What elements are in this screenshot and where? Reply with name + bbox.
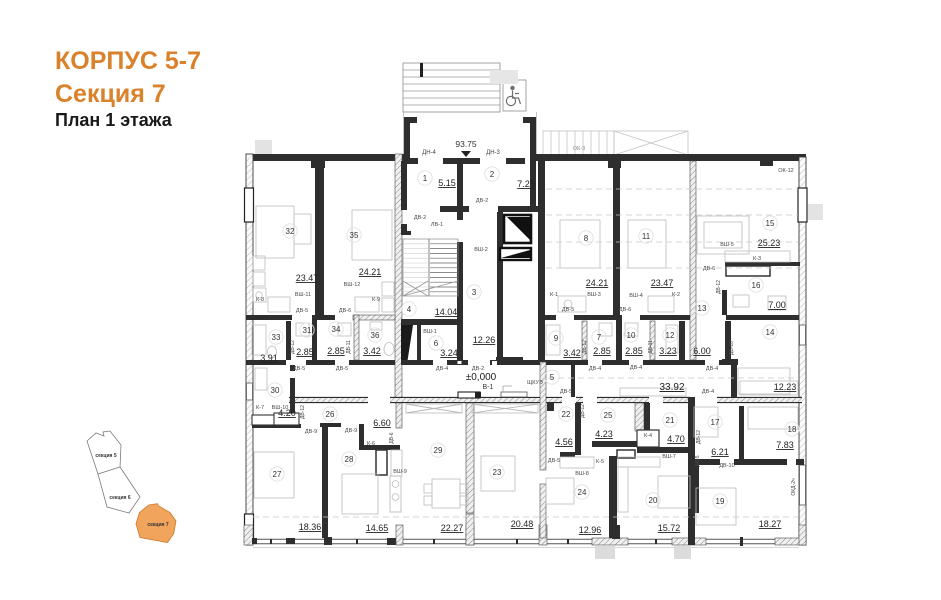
svg-text:ДВ-5: ДВ-5 — [296, 308, 308, 314]
svg-text:ДВ-12: ДВ-12 — [300, 405, 306, 419]
svg-text:6.00: 6.00 — [693, 346, 711, 356]
svg-text:3.23: 3.23 — [659, 346, 677, 356]
svg-text:13: 13 — [698, 304, 707, 313]
svg-text:24.21: 24.21 — [586, 278, 609, 288]
svg-text:6: 6 — [434, 339, 439, 348]
svg-text:ДН-3: ДН-3 — [486, 150, 500, 156]
svg-text:±0,000: ±0,000 — [466, 372, 497, 383]
svg-text:ВШ-7: ВШ-7 — [662, 454, 676, 460]
svg-text:23: 23 — [493, 468, 502, 477]
svg-text:ВШ-8: ВШ-8 — [575, 471, 589, 477]
svg-text:20.48: 20.48 — [511, 519, 534, 529]
svg-text:ДВ-11: ДВ-11 — [346, 340, 352, 354]
svg-text:ДВ-12: ДВ-12 — [580, 404, 586, 418]
svg-text:19: 19 — [716, 497, 725, 506]
svg-text:План 1 этажа: План 1 этажа — [55, 110, 173, 130]
svg-text:К-7: К-7 — [256, 405, 264, 411]
svg-text:ЛВ-1: ЛВ-1 — [431, 222, 443, 228]
svg-text:ДВ-5: ДВ-5 — [560, 389, 572, 395]
svg-text:12.26: 12.26 — [473, 335, 496, 345]
svg-text:2: 2 — [490, 170, 495, 179]
svg-text:ДВ-4: ДВ-4 — [630, 365, 642, 371]
svg-text:4: 4 — [407, 305, 412, 314]
svg-text:31: 31 — [303, 326, 312, 335]
svg-text:ДВ-10: ДВ-10 — [719, 463, 734, 469]
svg-text:1: 1 — [423, 174, 428, 183]
svg-text:5.15: 5.15 — [438, 178, 456, 188]
svg-text:ДВ-5: ДВ-5 — [562, 307, 574, 313]
svg-text:К-8: К-8 — [256, 297, 264, 303]
svg-text:К-6: К-6 — [367, 441, 375, 447]
svg-text:ВШ-12: ВШ-12 — [344, 282, 361, 288]
svg-text:6.21: 6.21 — [711, 447, 729, 457]
svg-text:3.42: 3.42 — [563, 348, 581, 358]
svg-text:ДВ-9: ДВ-9 — [305, 429, 317, 435]
svg-text:34: 34 — [332, 325, 341, 334]
svg-text:8: 8 — [584, 234, 589, 243]
svg-text:22.27: 22.27 — [441, 523, 464, 533]
svg-text:24.21: 24.21 — [359, 267, 382, 277]
svg-text:Секция 7: Секция 7 — [55, 80, 166, 108]
svg-text:5: 5 — [550, 373, 555, 382]
svg-text:ДВ-2: ДВ-2 — [472, 366, 484, 372]
svg-text:7: 7 — [597, 333, 602, 342]
svg-text:секция 5: секция 5 — [95, 453, 117, 459]
svg-text:2.85: 2.85 — [625, 346, 643, 356]
svg-text:ВШ-1: ВШ-1 — [423, 329, 437, 335]
svg-text:ДВ-6: ДВ-6 — [389, 432, 395, 443]
svg-text:3.42: 3.42 — [363, 346, 381, 356]
svg-text:23.47: 23.47 — [651, 278, 674, 288]
svg-text:К-9: К-9 — [372, 297, 380, 303]
svg-text:28: 28 — [345, 455, 354, 464]
svg-text:32: 32 — [286, 227, 295, 236]
svg-text:9: 9 — [554, 334, 559, 343]
svg-text:КОРПУС 5-7: КОРПУС 5-7 — [55, 47, 201, 75]
svg-text:ВШ-3: ВШ-3 — [587, 292, 601, 298]
svg-text:ДВ-11: ДВ-11 — [648, 340, 654, 354]
svg-text:ДВ-12: ДВ-12 — [696, 430, 702, 444]
svg-text:93.75: 93.75 — [455, 139, 477, 149]
svg-text:14.04: 14.04 — [435, 307, 458, 317]
svg-text:22: 22 — [562, 410, 571, 419]
svg-text:ДВ-12: ДВ-12 — [716, 280, 722, 294]
svg-text:17: 17 — [711, 418, 720, 427]
svg-text:ДВ-12: ДВ-12 — [582, 340, 588, 354]
svg-text:27: 27 — [273, 470, 282, 479]
svg-text:7.25: 7.25 — [517, 179, 535, 189]
svg-text:12: 12 — [666, 331, 675, 340]
svg-text:3.24: 3.24 — [440, 348, 458, 358]
svg-text:20: 20 — [649, 496, 658, 505]
svg-text:7.83: 7.83 — [776, 440, 794, 450]
svg-text:ОК-12: ОК-12 — [778, 168, 793, 174]
svg-text:ДВ-12: ДВ-12 — [290, 340, 296, 354]
svg-text:ДВ-5: ДВ-5 — [695, 455, 701, 466]
svg-text:26: 26 — [326, 410, 335, 419]
svg-text:В-1: В-1 — [483, 384, 494, 391]
svg-text:18.36: 18.36 — [299, 522, 322, 532]
svg-text:ДВ-2: ДВ-2 — [414, 215, 426, 221]
svg-text:ДВ-4: ДВ-4 — [589, 366, 601, 372]
svg-text:ДН-4: ДН-4 — [422, 150, 436, 156]
svg-text:ДВ-5: ДВ-5 — [336, 366, 348, 372]
svg-text:К-3: К-3 — [753, 256, 761, 262]
svg-text:секция 7: секция 7 — [147, 522, 169, 528]
svg-text:24: 24 — [578, 488, 587, 497]
svg-text:ДВ-4: ДВ-4 — [706, 366, 718, 372]
svg-text:ОКД-2ч: ОКД-2ч — [791, 478, 797, 496]
svg-text:2.85: 2.85 — [327, 346, 345, 356]
svg-text:14: 14 — [766, 328, 775, 337]
svg-text:16: 16 — [752, 281, 761, 290]
svg-text:ВШ-9: ВШ-9 — [393, 469, 407, 475]
svg-text:ДВ-10: ДВ-10 — [729, 341, 735, 355]
svg-text:ДВ-5: ДВ-5 — [293, 366, 305, 372]
svg-text:ВШ-5: ВШ-5 — [720, 242, 734, 248]
svg-text:К-4: К-4 — [644, 433, 652, 439]
svg-text:ДВ-4: ДВ-4 — [702, 389, 714, 395]
svg-text:ВШ-4: ВШ-4 — [629, 293, 643, 299]
svg-text:11: 11 — [642, 232, 651, 241]
svg-text:ЩКУЭ: ЩКУЭ — [527, 380, 543, 386]
svg-text:4.70: 4.70 — [667, 434, 685, 444]
svg-text:36: 36 — [371, 331, 380, 340]
svg-text:ВШ-11: ВШ-11 — [295, 292, 311, 298]
svg-text:ДВ-9: ДВ-9 — [345, 428, 357, 434]
svg-text:секция 6: секция 6 — [109, 495, 131, 501]
svg-text:К-2: К-2 — [672, 292, 680, 298]
svg-text:33.92: 33.92 — [659, 382, 684, 393]
svg-text:К-1: К-1 — [550, 292, 558, 298]
svg-text:18.27: 18.27 — [759, 519, 782, 529]
svg-text:4.23: 4.23 — [595, 429, 613, 439]
svg-text:30: 30 — [271, 386, 280, 395]
svg-text:14.65: 14.65 — [366, 523, 389, 533]
svg-text:25: 25 — [604, 411, 613, 420]
svg-text:12.96: 12.96 — [579, 525, 602, 535]
svg-text:2.85: 2.85 — [593, 346, 611, 356]
svg-text:6.60: 6.60 — [373, 418, 391, 428]
svg-text:21: 21 — [666, 416, 675, 425]
svg-text:К-5: К-5 — [596, 459, 604, 465]
svg-text:23.47: 23.47 — [296, 273, 319, 283]
svg-text:7.00: 7.00 — [768, 300, 786, 310]
svg-text:ДВ-4: ДВ-4 — [436, 366, 448, 372]
svg-text:12.23: 12.23 — [774, 382, 797, 392]
svg-text:35: 35 — [350, 231, 359, 240]
svg-text:3.91: 3.91 — [260, 353, 278, 363]
svg-text:25.23: 25.23 — [758, 238, 781, 248]
svg-text:ДВ-5: ДВ-5 — [548, 458, 560, 464]
svg-text:29: 29 — [434, 446, 443, 455]
svg-text:ВШ-2: ВШ-2 — [474, 247, 488, 253]
svg-text:15.72: 15.72 — [658, 523, 681, 533]
svg-text:10: 10 — [627, 331, 636, 340]
svg-text:4.56: 4.56 — [555, 437, 573, 447]
svg-text:15: 15 — [766, 219, 775, 228]
svg-text:ДВ-6: ДВ-6 — [703, 266, 715, 272]
svg-text:33: 33 — [272, 333, 281, 342]
svg-text:2.85: 2.85 — [296, 347, 314, 357]
svg-text:3: 3 — [472, 288, 477, 297]
svg-text:ДВ-6: ДВ-6 — [619, 307, 631, 313]
svg-text:18: 18 — [788, 425, 797, 434]
svg-text:ДВ-6: ДВ-6 — [339, 308, 351, 314]
svg-text:ДВ-2: ДВ-2 — [476, 198, 488, 204]
svg-text:ВШ-10: ВШ-10 — [272, 405, 289, 411]
svg-text:ОК-3: ОК-3 — [573, 146, 585, 152]
